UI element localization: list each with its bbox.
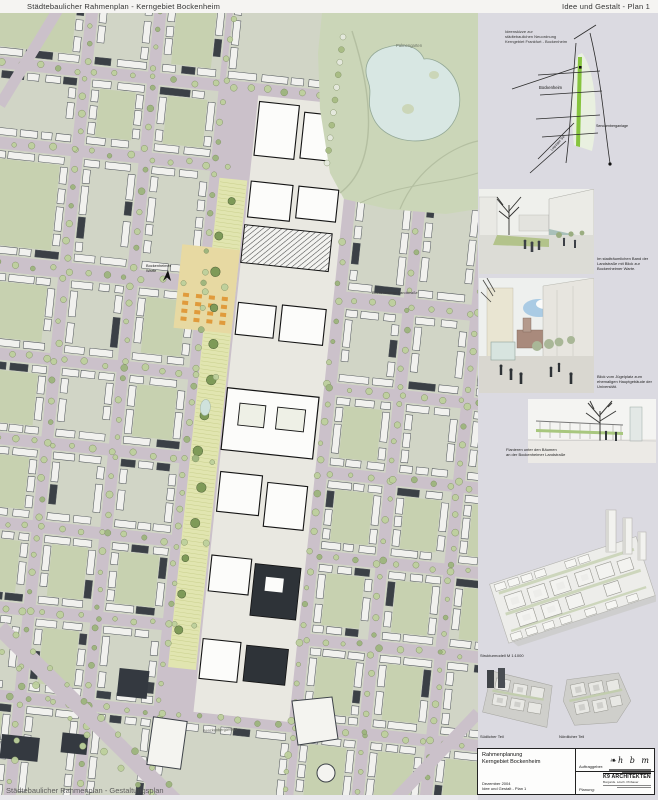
model-north-caption: Nördlicher Teil: [559, 734, 584, 739]
k9-logo: K9 ARCHITEKTEN Borgards. Lösch. Piribaue…: [603, 773, 651, 788]
client-cell: Auftraggeber: ❧h b m: [576, 749, 654, 772]
rendering-3-caption: Flanieren unter den Bäumen an der Bocken…: [506, 447, 582, 457]
model-south-caption: Südlicher Teil: [480, 734, 504, 739]
rendering-1-caption: Im stadträumlichen Band der Landstraße m…: [597, 256, 654, 272]
project-name-line1: Rahmenplanung: [482, 752, 522, 758]
round-building: [317, 764, 335, 782]
hbm-logo: ❧h b m: [609, 750, 651, 773]
title-block-project: Rahmenplanung Kerngebiet Bockenheim Deze…: [478, 749, 576, 794]
plan-sheet: { "header": { "left_title": "Städtebauli…: [0, 0, 658, 800]
concept-sketch-diagram: Bockenheim Senckenberganlage Leipziger S…: [478, 23, 658, 193]
sheet-title: Städtebaulicher Rahmenplan - Kerngebiet …: [27, 2, 220, 11]
sidebar: Bockenheim Senckenberganlage Leipziger S…: [478, 13, 658, 800]
plan-title: Idee und Gestalt - Plan 1: [562, 2, 650, 11]
project-name-line2: Kerngebiet Bockenheim: [482, 759, 540, 765]
rendering-2-image: [479, 278, 594, 393]
model-photo: [480, 506, 656, 648]
planner-cell: Planung: K9 ARCHITEKTEN Borgards. Lösch.…: [576, 772, 654, 794]
planner-smallprint: [617, 787, 651, 788]
client-smallprint: [609, 769, 651, 771]
gestaltungsplan-overlay-label: Städtebaulicher Rahmenplan - Gestaltungs…: [6, 786, 164, 795]
model-north-photo: [558, 668, 636, 734]
planner-smallprint: [603, 785, 651, 786]
planner-names: Borgards. Lösch. Piribauer: [603, 780, 651, 784]
landmark-building: [147, 717, 187, 769]
leaf-icon: ❧: [609, 756, 618, 765]
warte-label2: Warte: [146, 268, 156, 273]
site-plan-map: Palmengarten Bockenheimer Warte Bockenhe…: [0, 13, 478, 795]
sketch-caption: Ideenskizze zur städtebaulichen Neuordnu…: [505, 29, 567, 44]
planner-label: Planung:: [579, 787, 595, 792]
landmark-building: [292, 697, 338, 745]
model-caption: Strukturmodell M 1:1000: [480, 653, 524, 658]
sketch-bockenheim-label: Bockenheim: [539, 85, 563, 90]
sketch-senckenberganlage-label: Senckenberganlage: [596, 124, 628, 128]
rendering-1-image: [479, 189, 594, 274]
plan-name: Idee und Gestalt - Plan 1: [482, 786, 526, 791]
palmengarten-label: Palmengarten: [396, 43, 423, 48]
sheet-header: Städtebaulicher Rahmenplan - Kerngebiet …: [0, 0, 658, 13]
title-block: Rahmenplanung Kerngebiet Bockenheim Deze…: [477, 748, 655, 795]
client-label: Auftraggeber:: [579, 764, 603, 769]
landstrasse-label: Bockenheimer Landstraße: [372, 290, 418, 295]
site-plan-svg: Palmengarten Bockenheimer Warte Bockenhe…: [0, 13, 478, 795]
rendering-2-caption: Blick vom Jügelplatz zum ehemaligen Haup…: [597, 374, 654, 390]
model-south-photo: [479, 668, 557, 734]
